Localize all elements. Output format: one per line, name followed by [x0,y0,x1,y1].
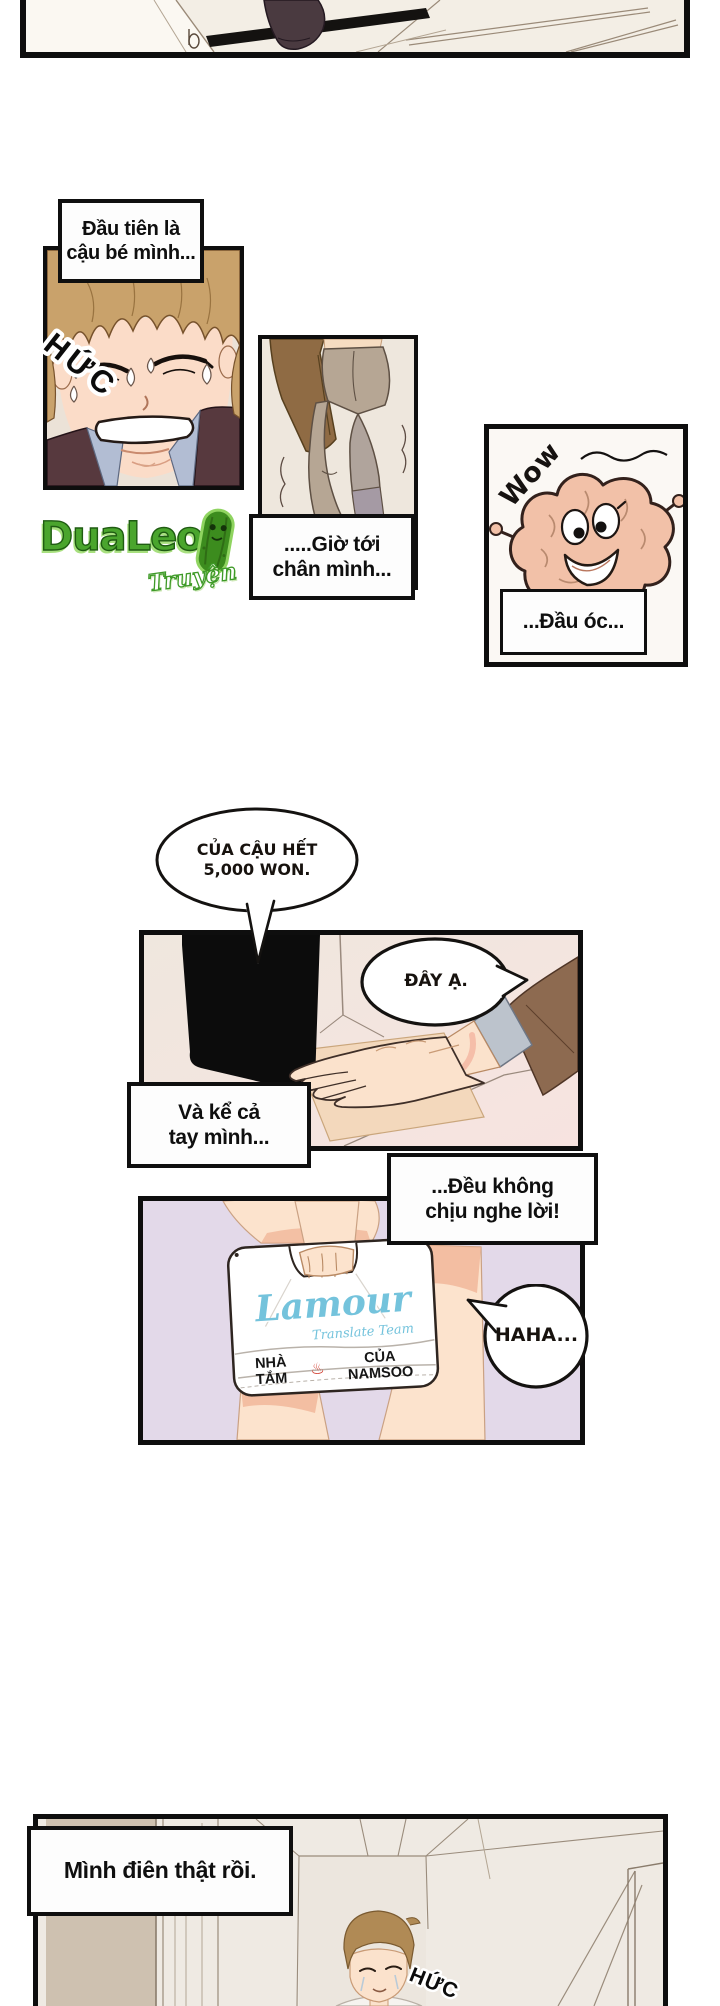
caption-hand-line1: Và kể cả [178,1100,260,1125]
caption-brain-text: ...Đầu óc... [523,609,624,634]
caption-obey-line2: chịu nghe lời! [425,1199,559,1224]
caption-crazy-text: Mình điên thật rồi. [64,1857,256,1885]
speech-bubble-laugh-text: HAHA... [484,1320,589,1352]
comic-page: Đầu tiên là cậu bé mình... [0,0,720,2006]
panel-top-floor [20,0,690,58]
speech-bubble-reply-text: ĐÂY Ạ. [372,964,500,1000]
caption-obey-line1: ...Đều không [431,1174,553,1199]
hot-spring-icon: ♨ [310,1359,325,1380]
watermark-name: DuaLeo [40,514,203,560]
bubble-laugh-line: HAHA... [495,1324,578,1348]
caption-legs: .....Giờ tới chân mình... [249,514,415,600]
caption-legs-line2: chân mình... [273,557,392,582]
sfx-sob-1-text: HỨC [38,325,125,404]
caption-hand-line2: tay mình... [169,1125,270,1150]
sfx-sob-1: HỨC [28,314,168,414]
caption-brain: ...Đầu óc... [500,589,647,655]
caption-legs-line1: .....Giờ tới [284,532,380,557]
watermark-logo: DuaLeo Truyện [40,508,250,606]
caption-hand: Và kể cả tay mình... [127,1082,311,1168]
watermark-sub: Truyện [147,558,239,597]
bubble-money-line2: 5,000 WON. [204,860,311,880]
caption-crazy: Mình điên thật rồi. [27,1826,293,1916]
caption-obey: ...Đều không chịu nghe lời! [387,1153,598,1245]
bubble-reply-line: ĐÂY Ạ. [404,971,468,992]
bubble-money-line1: CỦA CẬU HẾT [197,840,318,860]
caption-first-line2: cậu bé mình... [66,241,195,265]
sfx-sob-2-text: HỨC [406,1962,462,2003]
speech-bubble-money-text: CỦA CẬU HẾT 5,000 WON. [167,830,347,890]
bag-label-right: CỦA NAMSOO [330,1347,431,1384]
floor-shoe-illustration [26,0,684,52]
caption-first: Đầu tiên là cậu bé mình... [58,199,204,283]
bag-label-left: NHÀ TẮM [237,1354,305,1389]
caption-first-line1: Đầu tiên là [82,217,180,241]
sfx-sob-2: HỨC [398,1956,488,2006]
